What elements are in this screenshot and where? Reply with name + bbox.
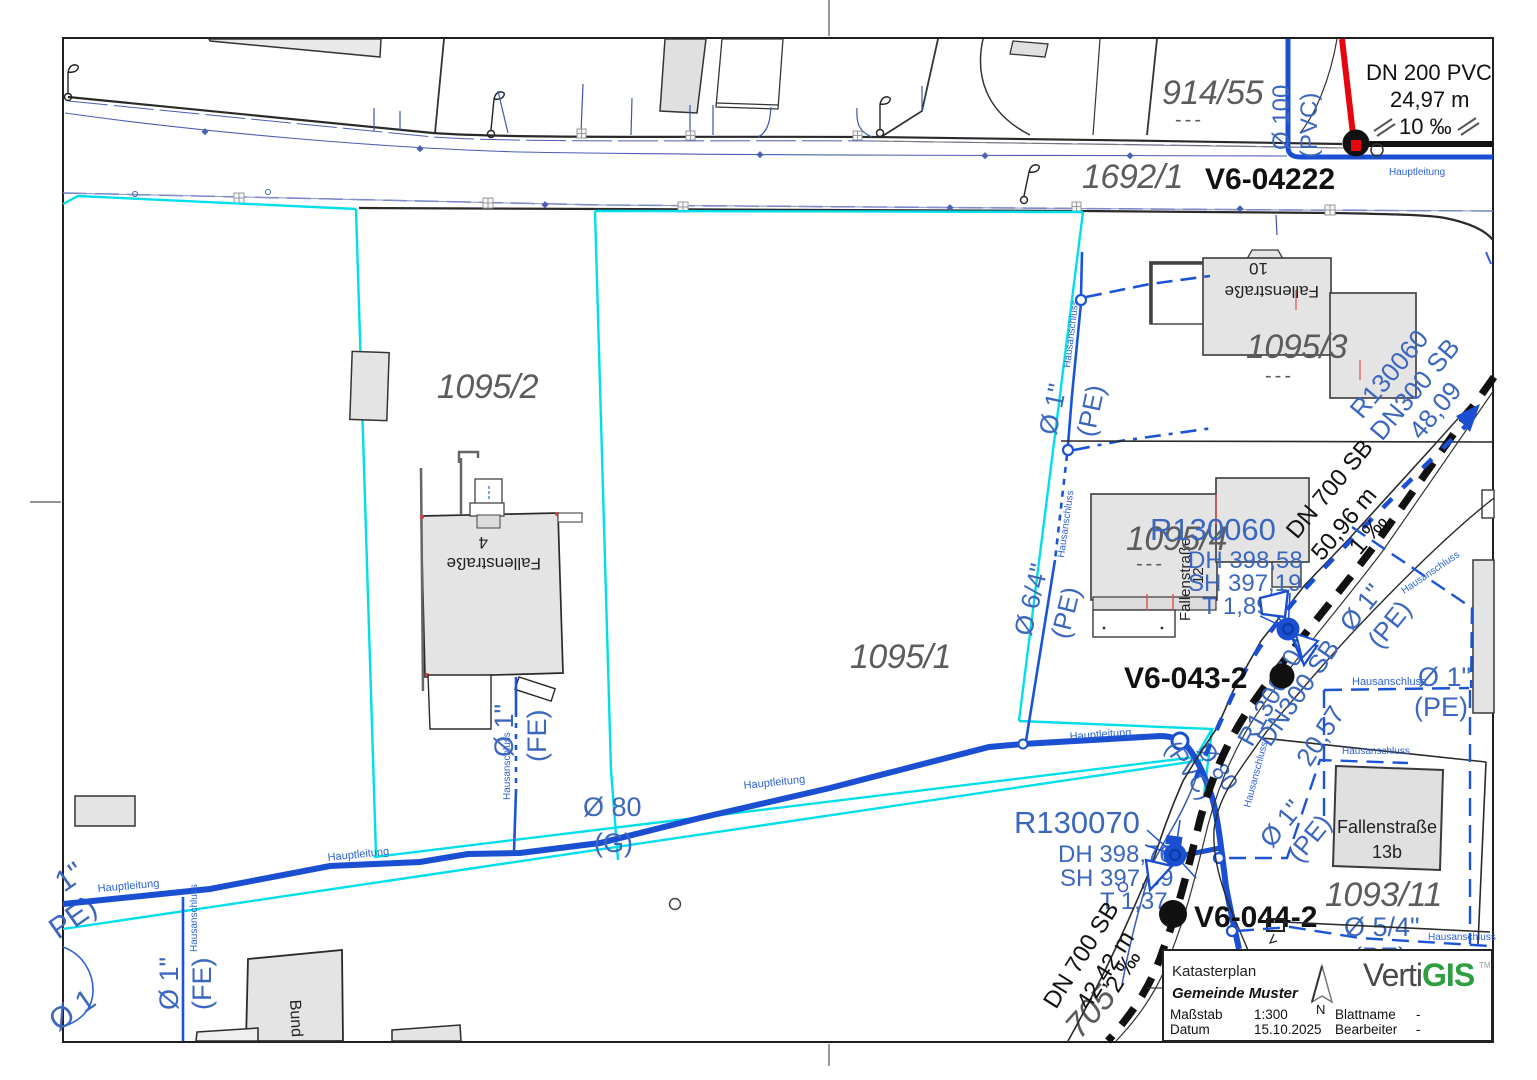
- svg-text:4: 4: [479, 533, 488, 552]
- svg-text:Fallenstraße: Fallenstraße: [447, 554, 541, 573]
- svg-text:---: ---: [1265, 365, 1294, 387]
- svg-text:-: -: [1416, 1022, 1421, 1037]
- svg-text:VertiGIS: VertiGIS: [1363, 957, 1475, 993]
- svg-text:Ø 1": Ø 1": [1418, 662, 1471, 692]
- svg-text:Bund: Bund: [286, 999, 305, 1037]
- svg-text:Ø 100: Ø 100: [1268, 85, 1295, 150]
- svg-text:1692/1: 1692/1: [1082, 158, 1183, 196]
- svg-text:Hauptleitung: Hauptleitung: [1389, 167, 1445, 178]
- svg-text:Maßstab: Maßstab: [1170, 1007, 1223, 1022]
- svg-text:TM: TM: [1479, 961, 1491, 970]
- svg-text:Katasterplan: Katasterplan: [1172, 963, 1256, 980]
- svg-text:R130060: R130060: [1150, 512, 1276, 547]
- svg-text:---: ---: [1136, 553, 1165, 575]
- svg-text:Ø 1": Ø 1": [154, 957, 184, 1010]
- svg-text:Ø 80: Ø 80: [583, 792, 642, 822]
- svg-text:Hausanschluss: Hausanschluss: [1352, 676, 1427, 688]
- svg-text:Hausanschluss: Hausanschluss: [1342, 746, 1410, 757]
- svg-text:(FE): (FE): [187, 958, 217, 1010]
- svg-text:13b: 13b: [1372, 842, 1402, 862]
- svg-text:1095/3: 1095/3: [1246, 328, 1348, 366]
- svg-text:Gemeinde Muster: Gemeinde Muster: [1172, 985, 1299, 1002]
- svg-text:V6-04222: V6-04222: [1205, 163, 1335, 196]
- svg-text:(PVC): (PVC): [1296, 93, 1323, 158]
- svg-text:Datum: Datum: [1170, 1022, 1210, 1037]
- svg-text:V6-043-2: V6-043-2: [1124, 662, 1247, 695]
- svg-text:1093/11: 1093/11: [1325, 876, 1442, 914]
- svg-text:Fallenstraße: Fallenstraße: [1337, 817, 1437, 837]
- svg-text:(FE): (FE): [522, 710, 552, 762]
- svg-text:1095/1: 1095/1: [850, 638, 951, 676]
- svg-text:24,97 m: 24,97 m: [1390, 87, 1470, 112]
- svg-text:(G): (G): [594, 828, 633, 858]
- svg-text:1:300: 1:300: [1254, 1007, 1288, 1022]
- svg-text:Bearbeiter: Bearbeiter: [1335, 1022, 1398, 1037]
- svg-text:10: 10: [1249, 259, 1268, 278]
- svg-text:DN 200 PVC: DN 200 PVC: [1366, 60, 1492, 85]
- svg-text:R130070: R130070: [1014, 805, 1140, 840]
- svg-text:15.10.2025: 15.10.2025: [1254, 1022, 1322, 1037]
- svg-text:Fallenstraße: Fallenstraße: [1225, 282, 1319, 301]
- svg-text:Ø 1": Ø 1": [489, 704, 519, 757]
- svg-text:N: N: [1316, 1002, 1325, 1017]
- svg-text:914/55: 914/55: [1162, 74, 1264, 112]
- svg-text:Hausanschluss: Hausanschluss: [1428, 932, 1496, 943]
- svg-text:(PE): (PE): [1414, 692, 1468, 722]
- svg-text:1095/2: 1095/2: [437, 368, 539, 406]
- svg-text:-: -: [1416, 1007, 1421, 1022]
- svg-text:10 ‰: 10 ‰: [1399, 114, 1452, 139]
- svg-text:Blattname: Blattname: [1335, 1007, 1396, 1022]
- svg-text:---: ---: [1175, 109, 1204, 131]
- svg-text:Hausanschluss: Hausanschluss: [189, 884, 200, 952]
